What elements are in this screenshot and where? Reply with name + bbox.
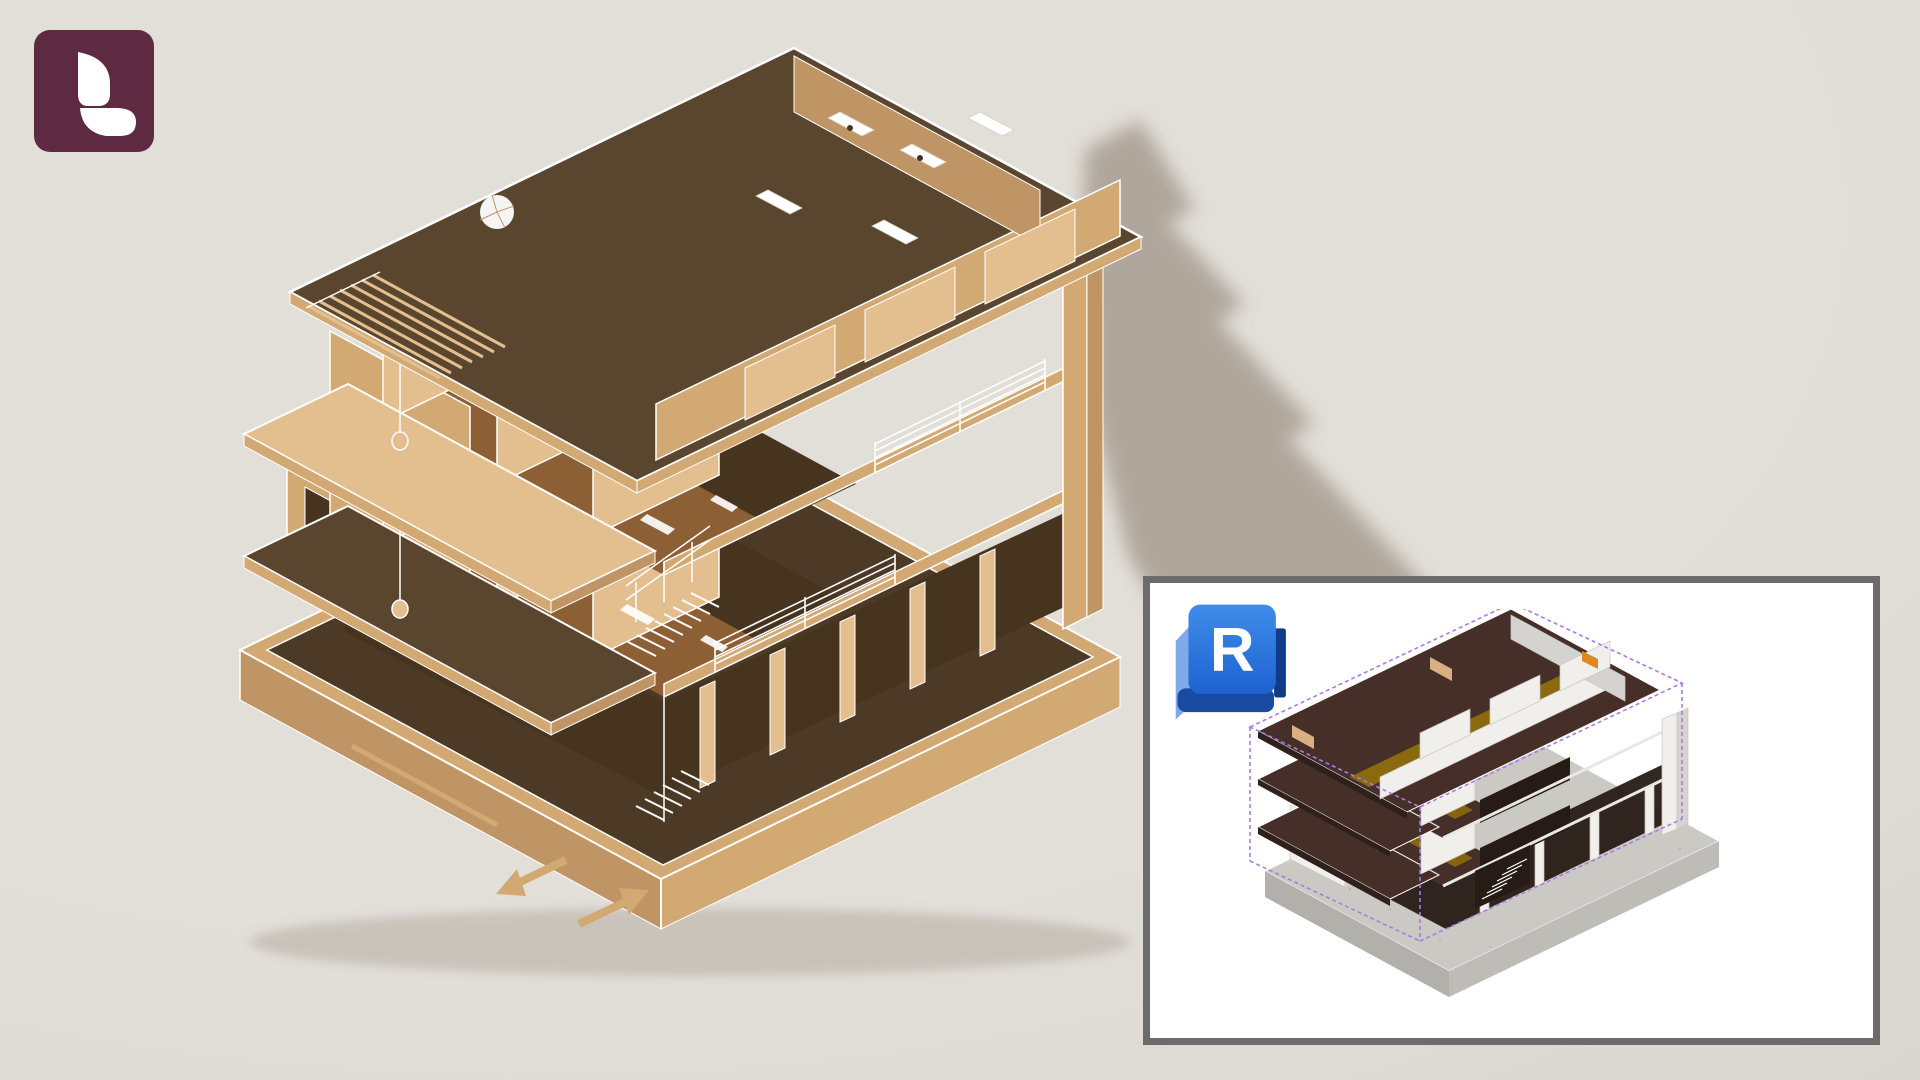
right-corner-pillar (1063, 237, 1103, 629)
rvt-right-pillar (1662, 708, 1688, 835)
app-logo-badge (34, 30, 154, 152)
revit-inset-panel: R (1143, 576, 1880, 1045)
lumion-leaf-icon (34, 30, 154, 152)
revit-model-preview (1230, 609, 1830, 1019)
spiral-stair (480, 195, 514, 229)
scene: R (0, 0, 1920, 1080)
